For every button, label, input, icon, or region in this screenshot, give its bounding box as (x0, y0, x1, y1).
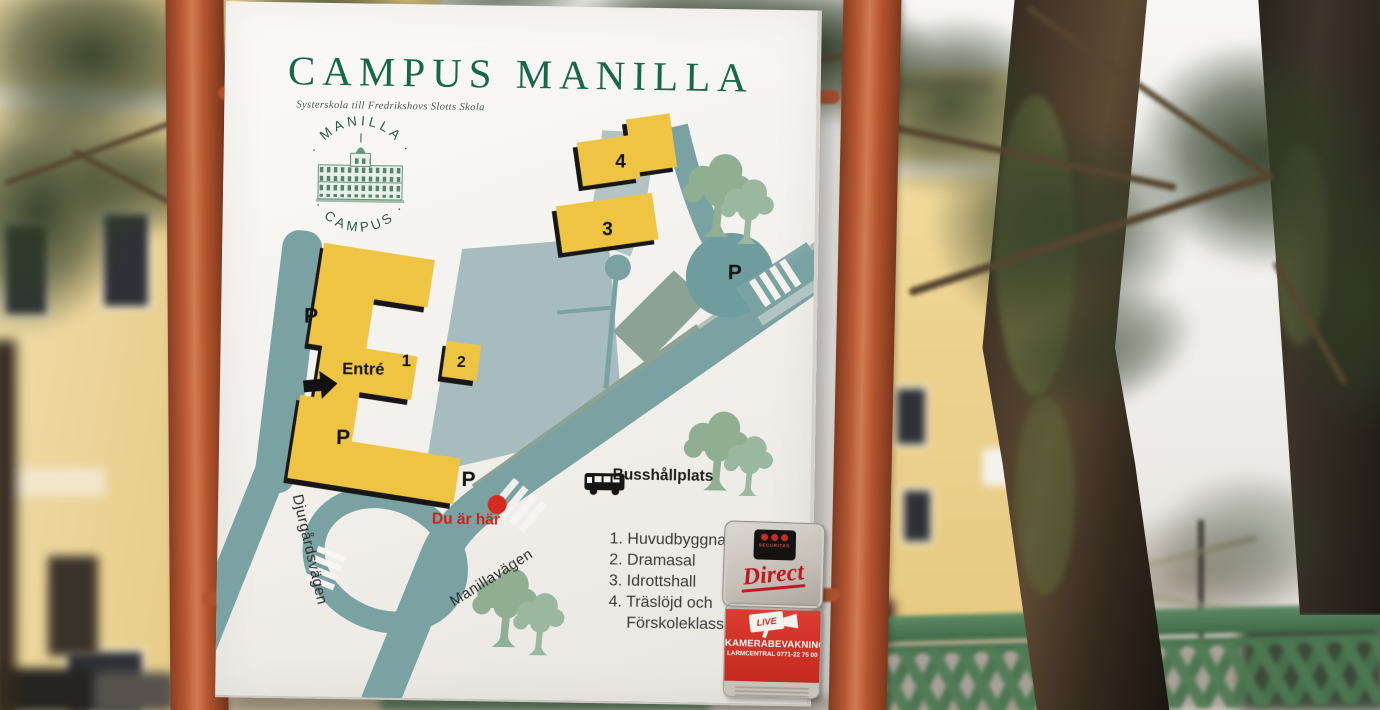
campus-map-sign: CAMPUS MANILLA Systerskola till Fredriks… (215, 1, 822, 706)
camera-sticker-body: LIVE KAMERABEVAKNING LARMCENTRAL 0771-22… (724, 609, 821, 683)
securitas-brand: SECURITAS (753, 542, 795, 548)
map-building-4 (575, 113, 678, 186)
label-parking: P (304, 305, 318, 328)
securitas-dots-icon (754, 533, 796, 541)
label-building-2: 2 (457, 354, 466, 371)
photo-scene: CAMPUS MANILLA Systerskola till Fredriks… (0, 0, 1380, 710)
label-bus-stop: Busshållplats (612, 466, 713, 485)
camera-text-line1: KAMERABEVAKNING (725, 638, 820, 651)
label-parking: P (461, 468, 475, 491)
right-building-window (900, 487, 934, 545)
left-edge-trunk (0, 340, 16, 710)
securitas-direct-sticker: SECURITAS Direct (722, 520, 826, 609)
pine-branch (1150, 470, 1350, 610)
label-parking: P (336, 426, 350, 449)
label-parking: P (728, 261, 742, 284)
label-building-4: 4 (615, 151, 626, 172)
right-building-window (893, 385, 929, 448)
camera-sticker-footer (724, 681, 820, 699)
securitas-logo: SECURITAS (753, 529, 796, 560)
camera-lens-icon (782, 614, 798, 631)
label-entrance: Entré (342, 360, 384, 379)
moss-patch (1015, 395, 1075, 595)
left-building-door (48, 556, 98, 656)
camera-text-line2: LARMCENTRAL 0771-22 75 00 (725, 650, 820, 659)
parked-car (95, 672, 175, 710)
label-building-3: 3 (602, 219, 613, 240)
camera-icon: LIVE (743, 609, 804, 636)
camera-surveillance-sticker: LIVE KAMERABEVAKNING LARMCENTRAL 0771-22… (723, 603, 822, 699)
label-you-are-here: Du är här (432, 511, 500, 529)
label-building-1: 1 (402, 351, 412, 370)
